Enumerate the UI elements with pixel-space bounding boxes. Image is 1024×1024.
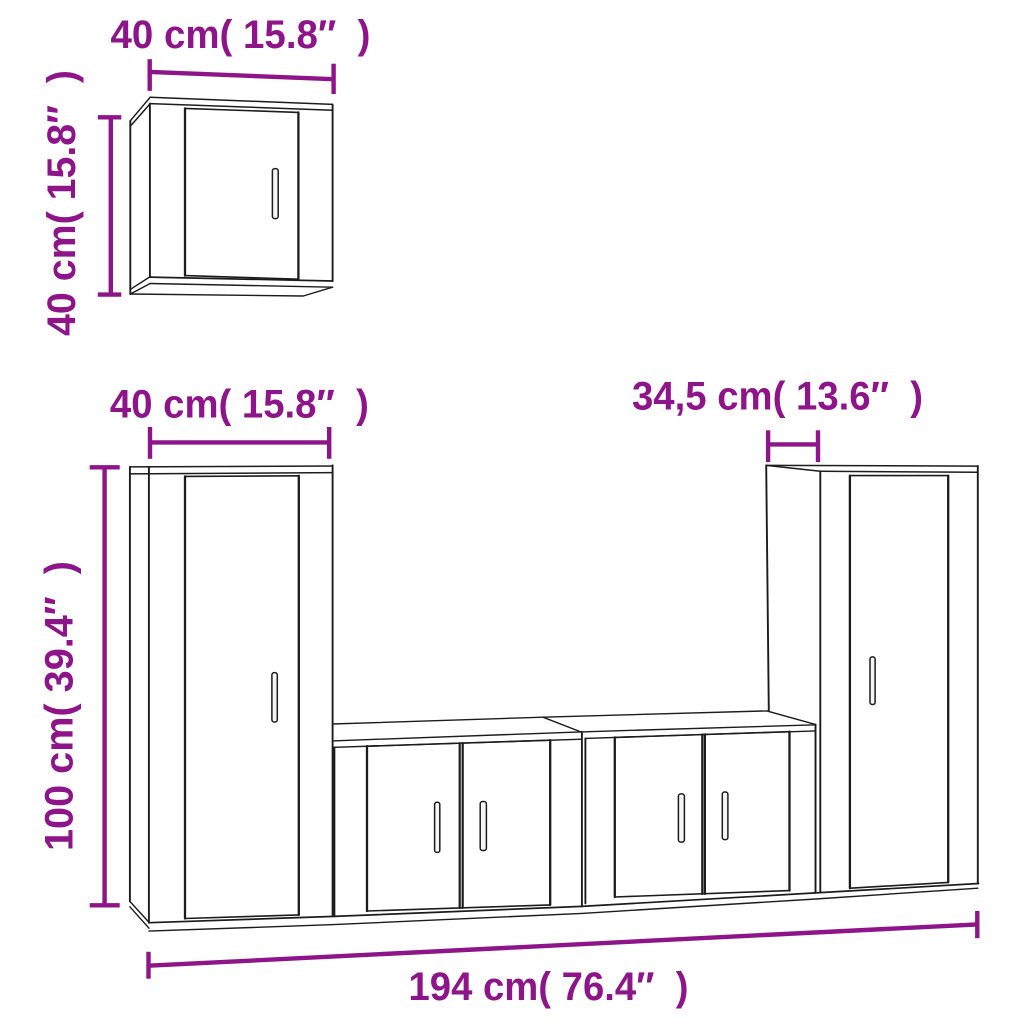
svg-text:194 cm( 76.4″ ): 194 cm( 76.4″ ) [409, 965, 689, 1009]
svg-text:34,5 cm( 13.6″ ): 34,5 cm( 13.6″ ) [632, 375, 923, 419]
svg-text:100 cm( 39.4″ ): 100 cm( 39.4″ ) [38, 561, 82, 851]
svg-text:40 cm( 15.8″ ): 40 cm( 15.8″ ) [40, 70, 84, 336]
svg-text:40 cm( 15.8″ ): 40 cm( 15.8″ ) [111, 13, 371, 57]
svg-text:40 cm( 15.8″ ): 40 cm( 15.8″ ) [110, 382, 369, 426]
